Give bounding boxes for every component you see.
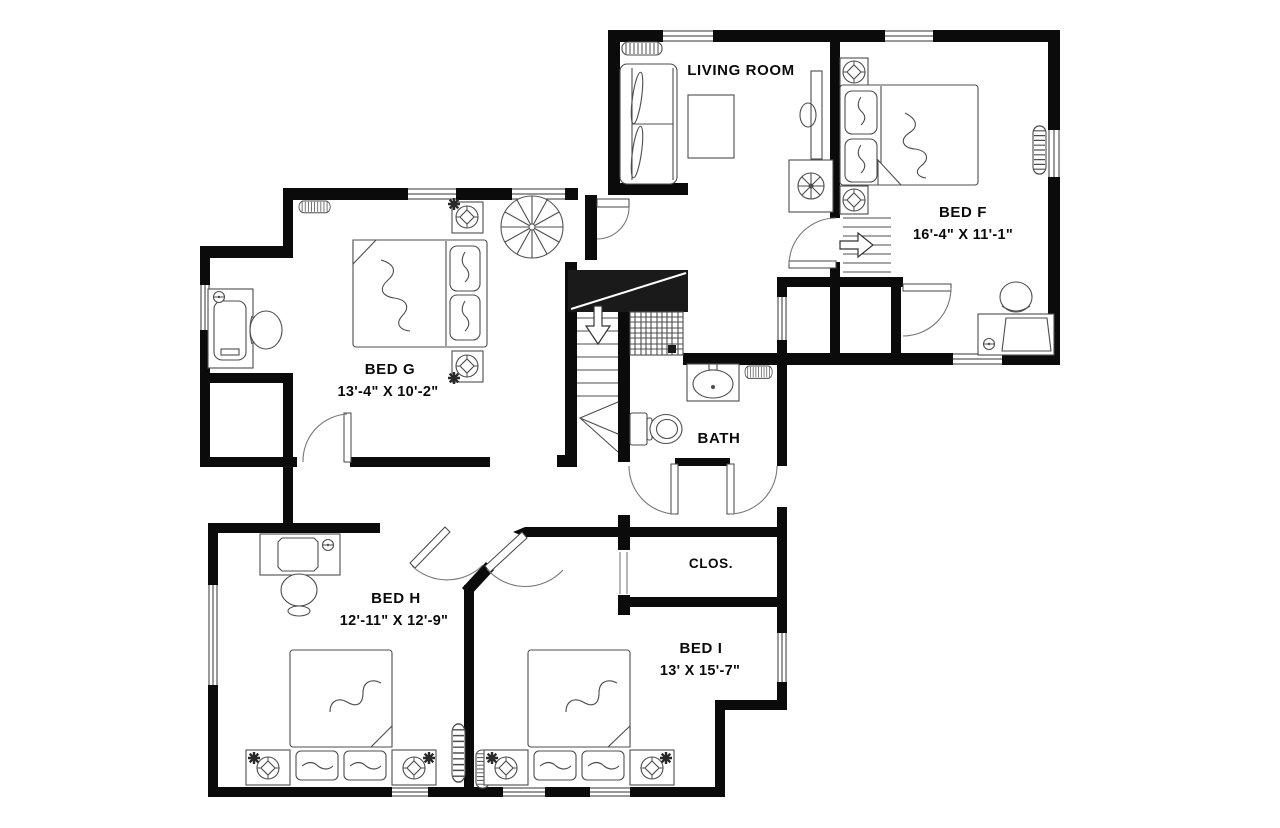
desk-chair: [281, 574, 317, 616]
window: [663, 30, 713, 42]
label-closet: CLOS.: [689, 556, 733, 571]
bedi-door: [485, 532, 563, 586]
window: [392, 787, 428, 797]
bedg-door: [303, 413, 351, 462]
plant: [448, 372, 460, 384]
bath-door: [629, 464, 678, 514]
plant: [448, 198, 460, 210]
bath-fixtures: [630, 312, 772, 445]
desk: [208, 289, 253, 368]
media-cabinet: [789, 160, 833, 212]
toilet: [630, 413, 682, 445]
window: [408, 188, 456, 200]
staircase-up: [840, 218, 891, 272]
label-bed-h: BED H: [371, 590, 421, 607]
bedh-furniture: [246, 534, 465, 785]
desk: [260, 534, 340, 575]
bedf-inner-door: [903, 284, 951, 336]
plant: [660, 752, 672, 764]
radiator: [299, 201, 330, 213]
label-bed-i: BED I: [679, 640, 722, 657]
radiator: [1033, 126, 1046, 174]
up-arrow-icon: [840, 233, 873, 257]
plant: [486, 752, 498, 764]
bed: [353, 240, 487, 347]
window: [885, 30, 933, 42]
dims-bed-h: 12'-11" X 12'-9": [340, 613, 448, 629]
label-living-room: LIVING ROOM: [687, 62, 794, 79]
label-bath: BATH: [698, 430, 741, 447]
bedh-door: [410, 527, 483, 580]
radiator: [452, 724, 465, 782]
spiral-staircase: [501, 196, 563, 258]
dims-bed-f: 16'-4" X 11'-1": [913, 227, 1013, 243]
desk-chair: [250, 311, 282, 349]
bed: [528, 650, 630, 780]
window: [1048, 130, 1060, 177]
staircase-down: [577, 306, 618, 452]
window: [208, 585, 218, 685]
nightstand: [840, 186, 868, 214]
shower: [630, 312, 683, 355]
tv: [800, 71, 822, 159]
radiator: [622, 42, 662, 55]
hall-landing-door: [789, 218, 836, 268]
bed: [840, 85, 978, 185]
label-bed-g: BED G: [365, 361, 416, 378]
stair-landing-black: [568, 270, 688, 312]
bedi-furniture: [476, 650, 674, 788]
window: [590, 787, 630, 797]
desk: [978, 314, 1054, 355]
coffee-table: [688, 95, 734, 158]
sofa: [620, 64, 677, 184]
window: [777, 633, 787, 682]
bed: [290, 650, 392, 780]
nightstand: [840, 58, 868, 86]
dims-bed-g: 13'-4" X 10'-2": [338, 384, 439, 400]
bath-radiator: [745, 366, 772, 378]
label-bed-f: BED F: [939, 204, 987, 221]
desk-chair: [1000, 282, 1032, 312]
floor-plan-page: LIVING ROOM BED F 16'-4" X 11'-1" BED G …: [0, 0, 1280, 828]
entry-door: [597, 199, 629, 239]
hall-closet-door: [727, 464, 777, 514]
window: [777, 297, 787, 340]
floor-plan-svg: LIVING ROOM BED F 16'-4" X 11'-1" BED G …: [0, 0, 1280, 828]
plant: [248, 752, 260, 764]
sink: [687, 364, 739, 401]
plant: [423, 752, 435, 764]
bedg-furniture: [208, 198, 487, 384]
dims-bed-i: 13' X 15'-7": [660, 663, 740, 679]
closet-louver-door: [620, 552, 627, 594]
window: [503, 787, 545, 797]
